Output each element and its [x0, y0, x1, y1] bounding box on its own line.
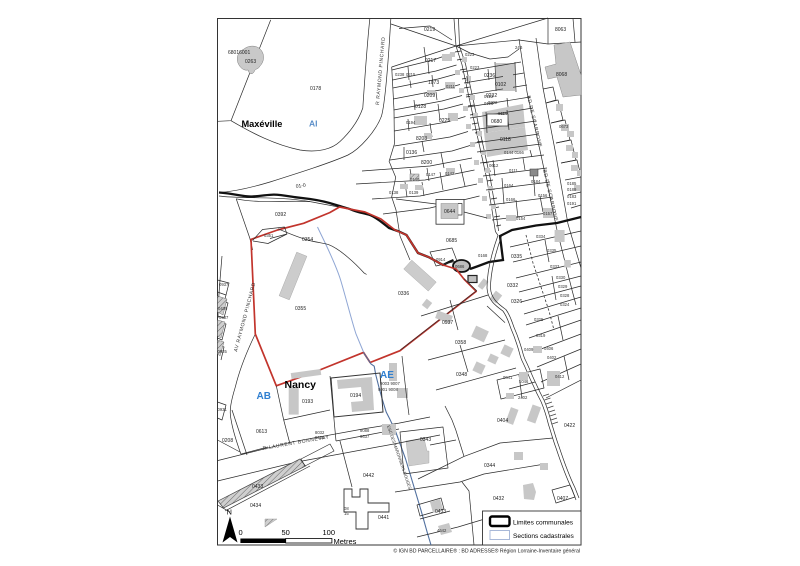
svg-text:2402: 2402 [518, 395, 528, 400]
svg-text:AB: AB [257, 391, 271, 402]
svg-text:0937: 0937 [442, 320, 453, 326]
svg-text:0407: 0407 [557, 496, 568, 502]
svg-text:Maxéville: Maxéville [242, 119, 283, 129]
svg-text:0211: 0211 [446, 84, 456, 89]
svg-text:0322: 0322 [488, 100, 498, 105]
svg-text:50: 50 [282, 528, 290, 537]
svg-text:0215: 0215 [406, 72, 416, 77]
svg-text:0613: 0613 [256, 429, 267, 435]
svg-text:8038: 8038 [315, 435, 325, 440]
svg-text:0164: 0164 [504, 183, 514, 188]
svg-text:Sections cadastrales: Sections cadastrales [513, 533, 575, 540]
svg-text:0324: 0324 [560, 302, 570, 307]
svg-text:0409: 0409 [524, 347, 534, 352]
svg-text:0102: 0102 [495, 82, 506, 88]
svg-text:N: N [227, 508, 232, 517]
svg-text:0142: 0142 [445, 171, 455, 176]
svg-text:0434: 0434 [250, 503, 261, 509]
svg-text:1073: 1073 [428, 80, 439, 86]
svg-text:0351: 0351 [264, 233, 274, 238]
svg-text:0223: 0223 [470, 65, 480, 70]
svg-text:0326: 0326 [511, 299, 522, 305]
svg-text:0236: 0236 [484, 73, 495, 79]
svg-text:0644: 0644 [444, 209, 455, 215]
svg-text:0189: 0189 [567, 187, 577, 192]
svg-text:100: 100 [323, 528, 336, 537]
svg-text:8063: 8063 [555, 27, 566, 33]
svg-text:0404: 0404 [497, 418, 508, 424]
svg-text:0168: 0168 [478, 253, 488, 258]
svg-text:0232: 0232 [486, 93, 497, 99]
svg-text:0432: 0432 [493, 496, 504, 502]
svg-text:0328: 0328 [560, 293, 570, 298]
svg-text:0354: 0354 [302, 237, 313, 243]
svg-text:Metres: Metres [334, 537, 357, 546]
svg-text:0441: 0441 [378, 515, 389, 521]
svg-text:0329: 0329 [558, 284, 568, 289]
svg-text:9001 9008: 9001 9008 [378, 387, 398, 392]
svg-text:0406: 0406 [544, 346, 554, 351]
svg-text:0402: 0402 [547, 355, 557, 360]
svg-text:8068: 8068 [556, 72, 567, 78]
svg-text:0325: 0325 [534, 317, 544, 322]
svg-text:0348: 0348 [456, 372, 467, 378]
svg-text:0208: 0208 [222, 438, 233, 444]
svg-text:68016001: 68016001 [228, 50, 250, 56]
svg-text:Nancy: Nancy [285, 379, 317, 391]
svg-text:0433: 0433 [252, 484, 263, 490]
svg-text:AI: AI [309, 119, 318, 129]
svg-text:0319: 0319 [536, 333, 546, 338]
svg-text:0209: 0209 [424, 93, 435, 99]
svg-text:0: 0 [239, 528, 243, 537]
svg-text:© IGN BD PARCELLAIRE® : BD ADR: © IGN BD PARCELLAIRE® : BD ADRESSE® Régi… [393, 548, 580, 555]
svg-text:AE: AE [380, 370, 394, 381]
svg-text:0937: 0937 [219, 315, 229, 320]
svg-text:0685: 0685 [446, 238, 457, 244]
svg-text:15: 15 [344, 511, 349, 516]
svg-text:0193: 0193 [302, 399, 313, 405]
svg-text:0183: 0183 [567, 194, 577, 199]
svg-text:0333: 0333 [550, 264, 560, 269]
svg-text:0442: 0442 [363, 473, 374, 479]
svg-text:0238: 0238 [395, 72, 405, 77]
svg-text:0355: 0355 [295, 306, 306, 312]
svg-text:0156: 0156 [538, 193, 548, 198]
svg-text:0263: 0263 [245, 59, 256, 65]
svg-text:0439: 0439 [218, 306, 228, 311]
svg-text:0191: 0191 [567, 201, 577, 206]
svg-text:0154: 0154 [516, 216, 526, 221]
svg-text:0111: 0111 [509, 168, 518, 173]
svg-text:0219: 0219 [424, 27, 435, 33]
svg-text:0144 0166: 0144 0166 [504, 150, 524, 155]
svg-text:0433: 0433 [435, 509, 446, 515]
svg-text:0392: 0392 [275, 212, 286, 218]
svg-text:0673: 0673 [559, 124, 569, 129]
svg-text:0412: 0412 [555, 374, 565, 379]
svg-text:0194: 0194 [350, 393, 361, 399]
svg-text:0185: 0185 [567, 181, 577, 186]
svg-text:0139: 0139 [409, 190, 419, 195]
svg-text:0358: 0358 [455, 340, 466, 346]
svg-text:0041: 0041 [503, 375, 513, 380]
svg-text:0166: 0166 [506, 197, 516, 202]
svg-text:0136: 0136 [406, 150, 417, 156]
svg-text:4642: 4642 [437, 528, 447, 533]
svg-text:0184: 0184 [531, 179, 541, 184]
svg-text:0335: 0335 [547, 248, 557, 253]
svg-text:9003 9007: 9003 9007 [380, 381, 400, 386]
svg-text:8088: 8088 [360, 428, 370, 433]
svg-text:0336: 0336 [398, 291, 409, 297]
svg-text:0217: 0217 [425, 58, 436, 64]
svg-text:9637: 9637 [360, 434, 370, 439]
svg-text:0178: 0178 [310, 86, 321, 92]
svg-text:0686: 0686 [455, 264, 465, 269]
svg-text:0114: 0114 [498, 111, 508, 116]
svg-text:0138: 0138 [389, 190, 399, 195]
svg-text:0937: 0937 [219, 282, 229, 287]
svg-text:0223: 0223 [465, 52, 475, 57]
svg-text:0118: 0118 [500, 137, 511, 143]
svg-text:24B: 24B [515, 45, 523, 50]
svg-text:0612: 0612 [489, 163, 499, 168]
svg-text:0128: 0128 [415, 104, 426, 110]
svg-text:0335: 0335 [511, 254, 522, 260]
svg-text:0935: 0935 [218, 349, 228, 354]
svg-text:0194: 0194 [406, 120, 416, 125]
svg-text:0157: 0157 [543, 211, 553, 216]
svg-text:0344: 0344 [484, 463, 495, 469]
svg-text:0914: 0914 [436, 257, 446, 262]
svg-text:8200: 8200 [421, 160, 432, 166]
svg-text:0680: 0680 [491, 119, 502, 125]
svg-text:0330: 0330 [556, 275, 566, 280]
svg-text:0332: 0332 [507, 283, 518, 289]
svg-text:0225: 0225 [439, 118, 450, 124]
svg-text:0422: 0422 [564, 423, 575, 429]
svg-text:0343: 0343 [420, 437, 431, 443]
svg-text:Limites communales: Limites communales [513, 520, 574, 527]
svg-text:0147: 0147 [426, 172, 436, 177]
svg-text:0931: 0931 [218, 407, 228, 412]
svg-text:8203: 8203 [416, 136, 427, 142]
svg-text:1046: 1046 [519, 379, 529, 384]
svg-text:0334: 0334 [536, 234, 546, 239]
svg-text:0140: 0140 [410, 177, 420, 182]
